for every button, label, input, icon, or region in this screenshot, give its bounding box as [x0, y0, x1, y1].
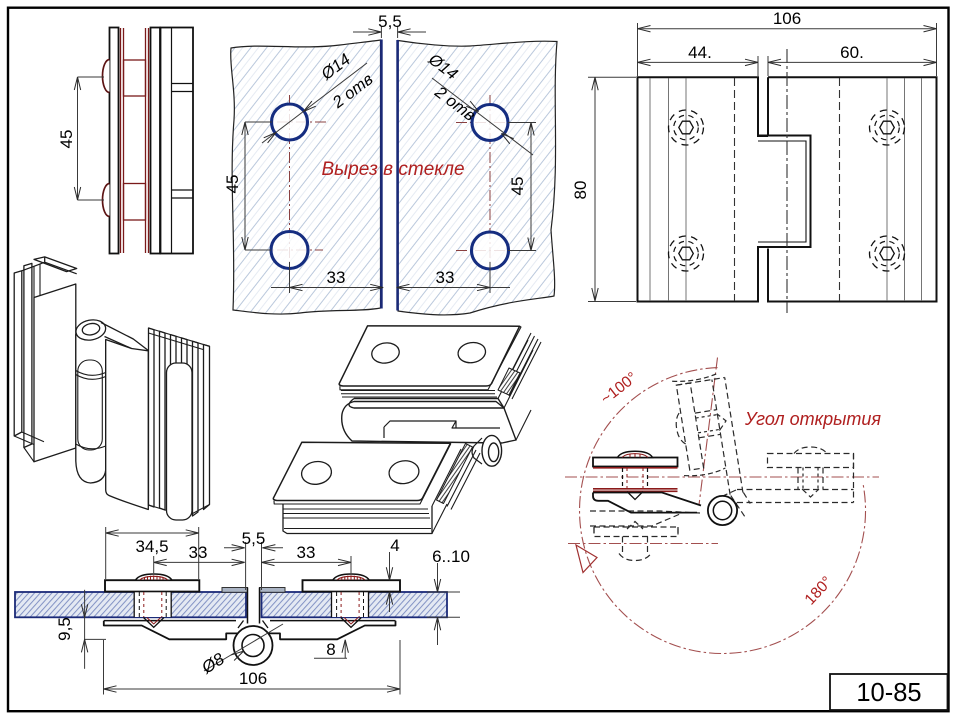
svg-text:45: 45 [223, 175, 242, 194]
svg-text:45: 45 [508, 177, 527, 196]
svg-text:80: 80 [571, 181, 590, 200]
svg-text:44.: 44. [688, 43, 712, 62]
svg-text:Угол открытия: Угол открытия [744, 409, 881, 429]
svg-text:33: 33 [327, 268, 346, 287]
svg-text:4: 4 [390, 536, 399, 555]
svg-text:45: 45 [57, 130, 76, 149]
svg-text:6..10: 6..10 [432, 547, 470, 566]
svg-text:5,5: 5,5 [378, 12, 402, 31]
svg-text:33: 33 [297, 543, 316, 562]
svg-text:10-85: 10-85 [856, 679, 921, 707]
svg-text:106: 106 [773, 9, 801, 28]
svg-text:106: 106 [239, 669, 267, 688]
svg-text:33: 33 [436, 268, 455, 287]
svg-text:34,5: 34,5 [135, 537, 168, 556]
svg-text:8: 8 [326, 640, 335, 659]
svg-text:33: 33 [189, 543, 208, 562]
svg-text:5,5: 5,5 [242, 529, 266, 548]
svg-text:9,5: 9,5 [55, 617, 74, 641]
svg-text:60.: 60. [840, 43, 864, 62]
svg-text:Вырез в стекле: Вырез в стекле [321, 159, 464, 180]
